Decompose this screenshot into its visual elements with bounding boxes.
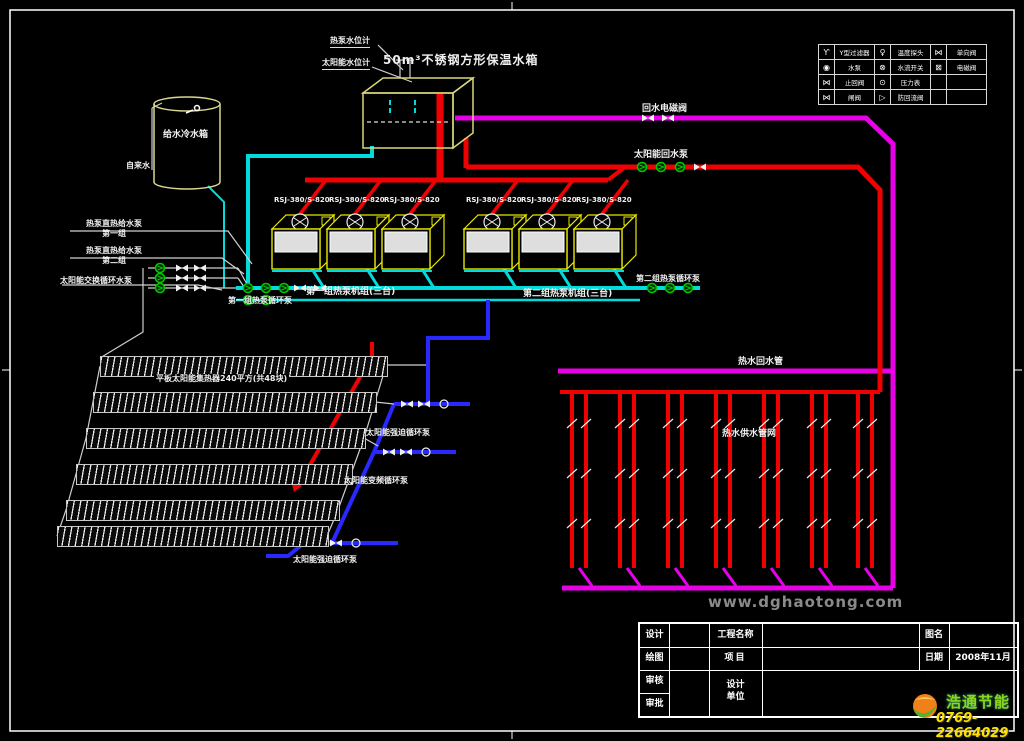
feed-pump2-label: 热泵直热给水泵 第二组: [86, 246, 142, 266]
legend-name: Y型过滤器: [835, 45, 875, 60]
legend-symbol: ⊠: [931, 60, 947, 75]
titleblock-project-label: 工程名称: [709, 630, 762, 642]
unit-model-label: RSJ-380/S-820: [384, 196, 440, 205]
legend-symbol: ⋈: [819, 90, 835, 105]
group1-units-label: 第一组热泵机组(三台): [306, 287, 395, 298]
unit-model-label: RSJ-380/S-820: [274, 196, 330, 205]
watermark-url: www.dghaotong.com: [708, 593, 903, 611]
return-solenoid-label: 回水电磁阀: [642, 104, 687, 115]
storage-tank: [363, 78, 473, 148]
hp-level-gauge-label: 热泵水位计: [330, 36, 370, 48]
solar-collector-row: [57, 526, 329, 547]
solar-collector-row: [93, 392, 377, 413]
group1-pump-label: 第一组热泵循环泵: [228, 296, 292, 306]
legend-symbol: ⊗: [875, 60, 891, 75]
titleblock-design-unit-label: 设计 单位: [709, 680, 762, 703]
cold-tank-label: 给水冷水箱: [163, 130, 208, 141]
collector-label: 平板太阳能集热器240平方(共48块): [154, 374, 289, 384]
legend-name: 闸阀: [835, 90, 875, 105]
legend-symbol: [931, 75, 947, 90]
titleblock-draw-label: 绘图: [640, 653, 669, 665]
titleblock-drawing-name-label: 图名: [919, 630, 949, 642]
legend-table: Ƴ Y型过滤器 ♀ 温度探头 ⋈ 单向阀 ◉ 水泵 ⊗ 水流开关 ⊠ 电磁阀 ⋈…: [818, 44, 987, 105]
tap-water-label: 自来水: [126, 161, 150, 171]
solar-forced-pump1-label: 太阳能强迫循环泵: [366, 428, 430, 438]
legend-name: [947, 90, 987, 105]
unit-model-label: RSJ-380/S-820: [466, 196, 522, 205]
legend-name: 压力表: [891, 75, 931, 90]
group2-pump-label: 第二组热泵循环泵: [636, 274, 700, 284]
unit-model-label: RSJ-380/S-820: [521, 196, 577, 205]
titleblock-design-label: 设计: [640, 630, 669, 642]
logo-sphere-icon: [910, 690, 942, 724]
company-name: 浩通节能: [946, 691, 1010, 712]
solar-collector-row: [86, 428, 366, 449]
legend-symbol: ⋈: [819, 75, 835, 90]
legend-symbol: ⋈: [931, 45, 947, 60]
titleblock-date-label: 日期: [919, 653, 949, 665]
legend-name: 水流开关: [891, 60, 931, 75]
company-logo: 浩通节能 0769-22664029: [910, 690, 1022, 736]
solar-collector-row: [66, 500, 340, 521]
legend-symbol: ◉: [819, 60, 835, 75]
cad-drawing-canvas: 50m³不锈钢方形保温水箱 热泵水位计 太阳能水位计 给水冷水箱 自来水 RSJ…: [0, 0, 1024, 741]
hw-return-label: 热水回水管: [738, 357, 783, 368]
tank-title-label: 50m³不锈钢方形保温水箱: [383, 53, 538, 68]
solar-forced-pump2-label: 太阳能强迫循环泵: [293, 555, 357, 565]
legend-name: 温度探头: [891, 45, 931, 60]
legend-name: 单向阀: [947, 45, 987, 60]
solar-vfd-pump-label: 太阳能变频循环泵: [344, 476, 408, 486]
titleblock-date-value: 2008年11月: [949, 653, 1017, 665]
cold-water-tank: [154, 97, 220, 189]
unit-model-label: RSJ-380/S-820: [329, 196, 385, 205]
hw-supply-label: 热水供水管网: [722, 429, 776, 440]
solar-exchange-pump-label: 太阳能交换循环水泵: [60, 276, 132, 286]
feed-pump1-label: 热泵直热给水泵 第一组: [86, 219, 142, 239]
legend-symbol: ▷: [875, 90, 891, 105]
company-phone: 0769-22664029: [936, 711, 1022, 741]
solar-return-pump-label: 太阳能回水泵: [634, 150, 688, 161]
legend-symbol: ⊙: [875, 75, 891, 90]
group2-units-label: 第二组热泵机组(三台): [523, 289, 612, 300]
titleblock-check-label: 审核: [640, 676, 669, 688]
solar-level-gauge-label: 太阳能水位计: [322, 58, 370, 70]
titleblock-approve-label: 审批: [640, 699, 669, 711]
legend-name: 止回阀: [835, 75, 875, 90]
riser-network: [567, 392, 878, 586]
legend-symbol: Ƴ: [819, 45, 835, 60]
unit-model-label: RSJ-380/S-820: [576, 196, 632, 205]
heat-pump-units: [272, 214, 636, 271]
legend-name: [947, 75, 987, 90]
titleblock-item-label: 项目: [709, 653, 762, 665]
legend-symbol: ♀: [875, 45, 891, 60]
legend-name: 防回流阀: [891, 90, 931, 105]
legend-symbol: [931, 90, 947, 105]
legend-name: 电磁阀: [947, 60, 987, 75]
legend-name: 水泵: [835, 60, 875, 75]
solar-collector-row: [76, 464, 353, 485]
